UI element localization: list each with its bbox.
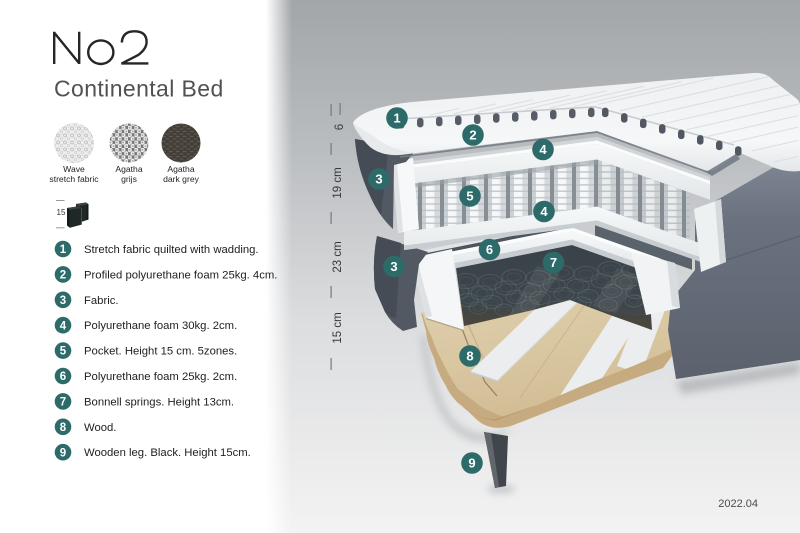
svg-text:8: 8 [466,349,473,364]
svg-text:9: 9 [60,447,66,459]
svg-text:Wood.: Wood. [84,422,116,434]
svg-text:4: 4 [539,142,547,157]
svg-text:4: 4 [60,320,67,332]
svg-text:19 cm: 19 cm [332,167,344,198]
svg-text:grijs: grijs [121,174,137,184]
svg-text:8: 8 [60,422,67,434]
svg-text:7: 7 [550,255,557,270]
svg-text:Wooden leg. Black. Height 15cm: Wooden leg. Black. Height 15cm. [84,447,251,459]
svg-text:4: 4 [540,204,548,219]
svg-text:dark grey: dark grey [163,174,200,184]
svg-text:5: 5 [60,346,67,358]
svg-text:2022.04: 2022.04 [718,498,758,510]
svg-text:3: 3 [375,172,382,187]
svg-text:3: 3 [60,295,66,307]
svg-text:Polyurethane foam 25kg. 2cm.: Polyurethane foam 25kg. 2cm. [84,371,237,383]
svg-text:15: 15 [57,208,66,217]
svg-text:2: 2 [60,269,66,281]
svg-text:Stretch fabric quilted with wa: Stretch fabric quilted with wadding. [84,244,259,256]
svg-text:Agatha: Agatha [167,164,194,174]
svg-text:Fabric.: Fabric. [84,295,119,307]
svg-text:Continental Bed: Continental Bed [54,76,224,102]
svg-text:7: 7 [60,396,66,408]
svg-text:6: 6 [60,371,66,383]
svg-text:6: 6 [334,124,346,130]
svg-text:Profiled polyurethane foam 25k: Profiled polyurethane foam 25kg. 4cm. [84,269,277,281]
svg-text:Wave: Wave [63,164,85,174]
svg-text:stretch fabric: stretch fabric [49,174,99,184]
svg-text:6: 6 [486,242,493,257]
svg-text:23 cm: 23 cm [332,241,344,272]
svg-text:1: 1 [60,244,67,256]
svg-text:9: 9 [468,456,475,471]
svg-text:Polyurethane foam 30kg. 2cm.: Polyurethane foam 30kg. 2cm. [84,320,237,332]
svg-text:Agatha: Agatha [115,164,142,174]
svg-text:2: 2 [469,128,476,143]
svg-text:15 cm: 15 cm [332,312,344,343]
svg-text:1: 1 [393,111,400,126]
svg-text:Bonnell springs. Height 13cm.: Bonnell springs. Height 13cm. [84,396,234,408]
svg-text:5: 5 [466,189,473,204]
svg-text:3: 3 [390,259,397,274]
svg-text:Pocket. Height 15 cm. 5zones.: Pocket. Height 15 cm. 5zones. [84,346,237,358]
